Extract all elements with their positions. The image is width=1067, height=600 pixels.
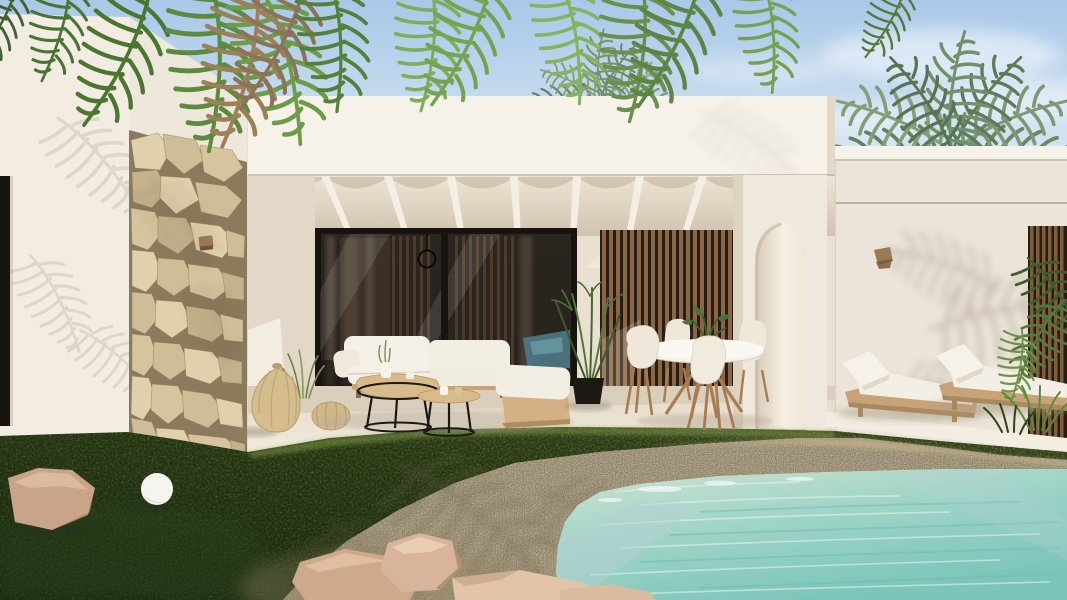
scene-canvas <box>0 0 1067 600</box>
left-building-front <box>0 14 130 444</box>
door-edge <box>0 176 10 426</box>
wall-groove-line <box>835 202 1067 204</box>
pool-water <box>556 469 1067 600</box>
right-building-coping <box>827 146 1067 160</box>
stone-wall-sconce <box>198 235 213 250</box>
chaise-ottoman <box>495 364 571 428</box>
arch <box>733 175 827 447</box>
villa-rendering <box>0 0 1067 600</box>
stone-column <box>121 130 266 452</box>
